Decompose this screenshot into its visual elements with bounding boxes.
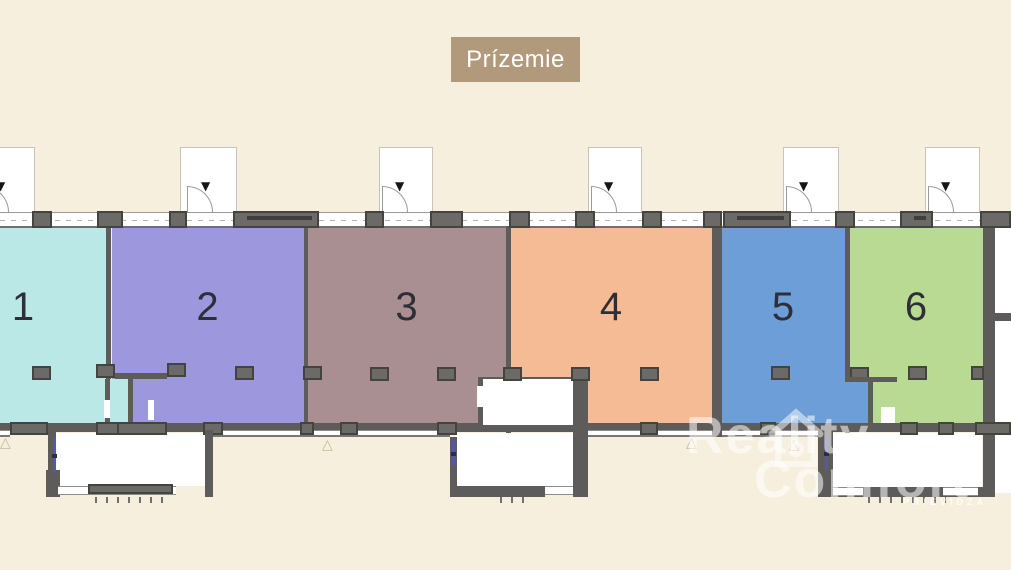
entrance-porch: ▼ (925, 147, 980, 212)
pillar (235, 366, 254, 380)
pillar (32, 366, 51, 380)
entrance-porch: ▼ (0, 147, 35, 212)
pillar (640, 367, 659, 381)
floor-plan-canvas: Prízemie ▼ ▼ ▼ ▼ ▼ ▼ 1 2 3 (0, 0, 1011, 570)
wall-pier (575, 211, 595, 228)
window-strip (213, 430, 450, 437)
wall-pier (975, 422, 1011, 435)
wall-pier (97, 211, 123, 228)
entrance-porch: ▼ (588, 147, 642, 212)
door-marker (452, 440, 455, 466)
wall-segment (573, 368, 588, 497)
wall-pier (233, 211, 319, 228)
wall-pier (835, 211, 855, 228)
unit-number: 3 (308, 285, 506, 330)
entrance-porch: ▼ (180, 147, 237, 212)
entrance-arrow-icon: ▼ (0, 180, 5, 192)
wall-pier (938, 422, 954, 435)
wall-pier (365, 211, 384, 228)
door-opening (477, 386, 484, 407)
pillar (571, 367, 590, 381)
pillar (503, 367, 522, 381)
wall-pier (703, 211, 722, 228)
wall-pier (430, 211, 463, 228)
wall-pier (980, 211, 1011, 228)
pillar (96, 364, 115, 378)
wall-segment (115, 373, 167, 379)
pillar (908, 366, 927, 380)
entrance-porch: ▼ (379, 147, 433, 212)
wall-pier (169, 211, 187, 228)
door-opening (881, 407, 895, 423)
window-strip (545, 486, 573, 495)
wall-pier (10, 422, 48, 435)
unit-number: 2 (112, 285, 304, 330)
unit-1[interactable]: 1 (0, 228, 107, 423)
terrace-step (88, 484, 173, 494)
wall-segment (128, 379, 133, 423)
unit-1-rear-corridor (110, 379, 128, 423)
wall-pier (509, 211, 530, 228)
adjacent-section (995, 228, 1011, 423)
unit-number: 5 (722, 285, 845, 330)
entrance-porch: ▼ (783, 147, 839, 212)
door-opening (104, 400, 110, 418)
wall-segment (995, 313, 1011, 321)
pillar (971, 366, 984, 380)
wall-pier (117, 422, 167, 435)
unit-number: 6 (850, 285, 983, 330)
stair-ticks (95, 497, 170, 503)
wall-segment (983, 226, 995, 497)
wall-segment (850, 377, 897, 382)
wall-pier (723, 211, 791, 228)
elevation-marker-icon: △ (322, 438, 333, 452)
pillar (370, 367, 389, 381)
wall-segment (304, 226, 308, 437)
wall-pier (340, 422, 358, 435)
unit-2[interactable]: 2 (112, 228, 304, 423)
adjacent-section (995, 433, 1011, 493)
unit-number: 4 (511, 285, 712, 330)
elevation-marker-icon: △ (0, 436, 11, 450)
wall-pier (32, 211, 52, 228)
stair-ticks (500, 497, 533, 503)
watermark-city: PRIEVIDZA (903, 498, 987, 507)
door-marker (53, 438, 56, 473)
pillar (167, 363, 186, 377)
pillar (771, 366, 790, 380)
wall-pier (642, 211, 662, 228)
pillar (303, 366, 322, 380)
terrace-center (455, 433, 573, 487)
unit-number: 1 (0, 285, 107, 330)
wall-pier (300, 422, 314, 435)
unit-5[interactable]: 5 (722, 228, 845, 423)
wall-segment (712, 226, 722, 437)
terrace-wall (205, 430, 213, 497)
wall-pier (437, 422, 457, 435)
pillar (437, 367, 456, 381)
central-stair-room (483, 377, 573, 425)
wall-pier (900, 211, 933, 228)
wall-pier (640, 422, 658, 435)
door-opening (148, 400, 154, 420)
wall-pier (900, 422, 918, 435)
terrace-left (56, 433, 205, 486)
floor-selector-label[interactable]: Prízemie (451, 37, 580, 82)
terrace-wall (450, 486, 545, 497)
